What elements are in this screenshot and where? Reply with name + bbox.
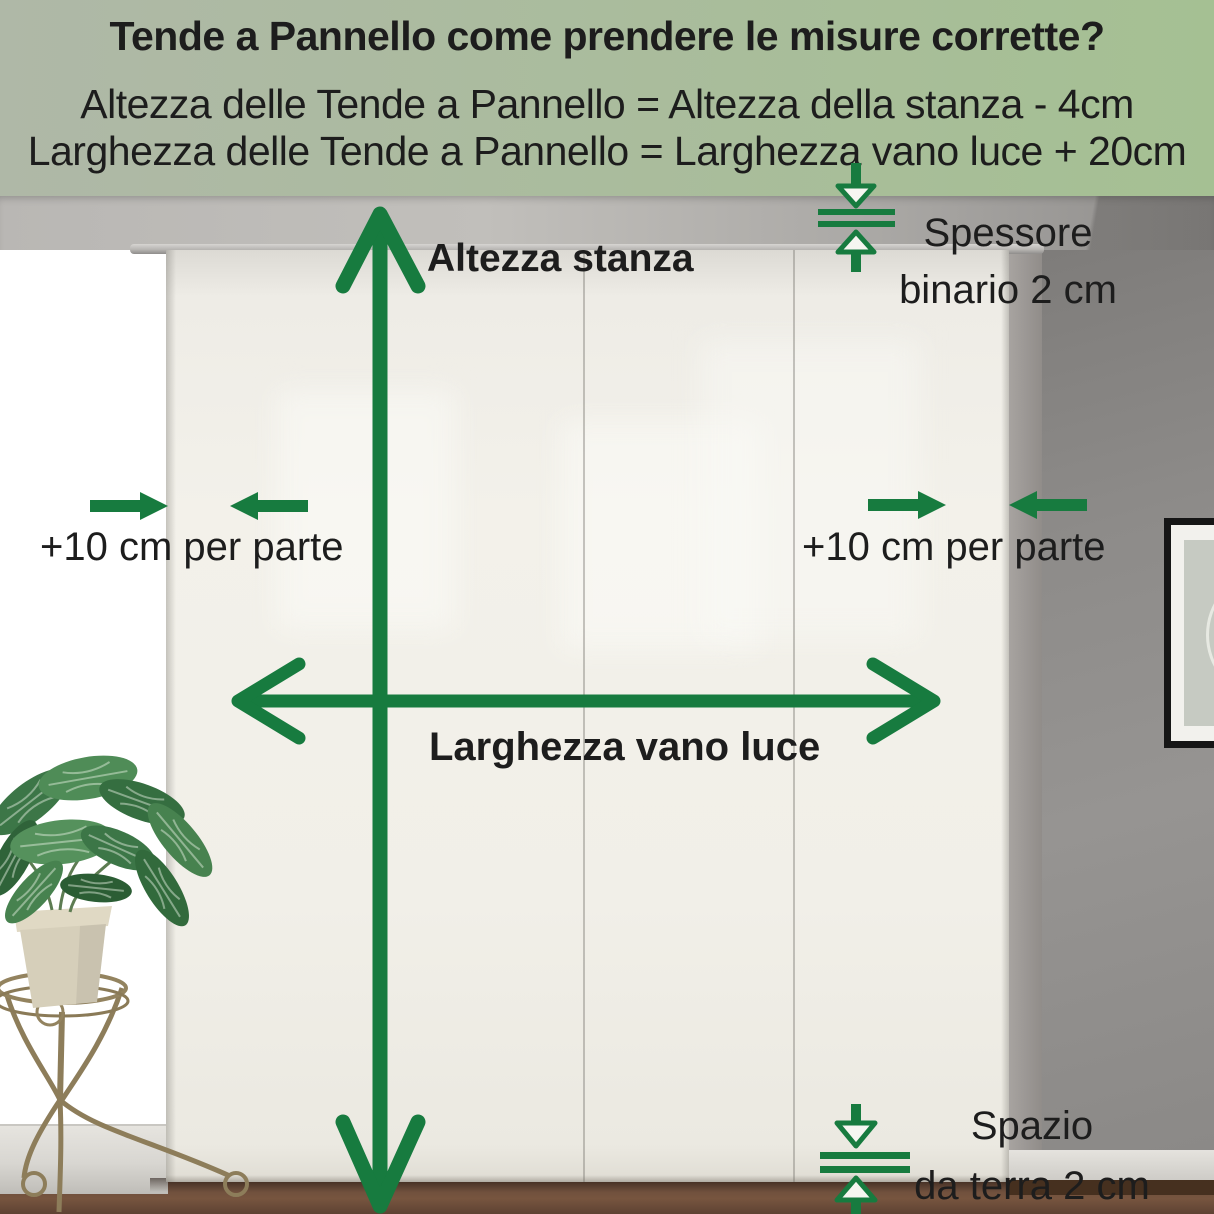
width-formula: Larghezza delle Tende a Pannello = Largh… [0, 128, 1214, 175]
header-banner: Tende a Pannello come prendere le misure… [0, 0, 1214, 196]
curtain-panel-seam [793, 250, 795, 1182]
room-height-label: Altezza stanza [427, 239, 694, 280]
plant-stand [0, 973, 247, 1212]
frame-artwork [1184, 540, 1214, 726]
floor-gap-label: Spazio da terra 2 cm [901, 1096, 1163, 1214]
track-thickness-label: Spessore binario 2 cm [884, 205, 1132, 319]
height-formula: Altezza delle Tende a Pannello = Altezza… [0, 81, 1214, 128]
measurement-infographic: Tende a Pannello come prendere le misure… [0, 0, 1214, 1214]
plant-pot [14, 906, 112, 1008]
floor-gap-line1: Spazio [901, 1096, 1163, 1156]
picture-frame [1164, 518, 1214, 748]
page-title: Tende a Pannello come prendere le misure… [0, 13, 1214, 60]
wall-corner [1008, 250, 1044, 1180]
track-thickness-line1: Spessore [884, 205, 1132, 262]
right-allowance-label: +10 cm per parte [802, 526, 1106, 568]
curtain-panel-seam [583, 250, 585, 1182]
opening-width-label: Larghezza vano luce [429, 726, 820, 768]
left-allowance-label: +10 cm per parte [40, 526, 344, 568]
plant-illustration [0, 740, 300, 1214]
curtain-light-reflection [700, 340, 920, 640]
track-thickness-line2: binario 2 cm [884, 262, 1132, 319]
floor-gap-line2: da terra 2 cm [901, 1156, 1163, 1214]
curtain-light-reflection [276, 390, 456, 630]
curtain-right-edge-shade [1001, 250, 1009, 1182]
plant-leaves [0, 749, 223, 934]
